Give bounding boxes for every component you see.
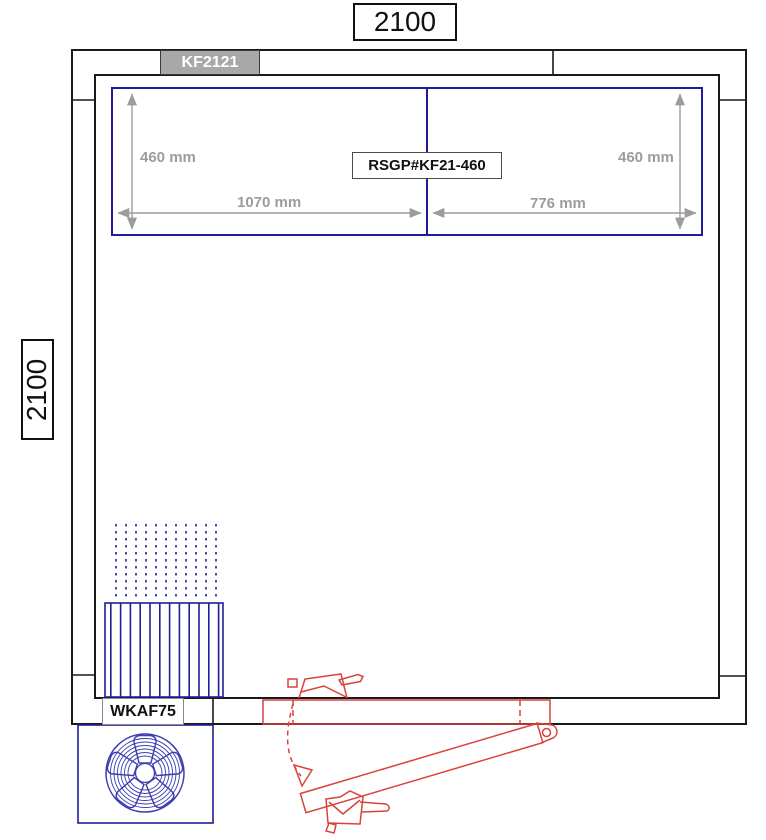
condensing-unit-label: WKAF75 — [102, 698, 184, 725]
door-leaf-open — [300, 723, 543, 812]
evaporator-coil — [105, 603, 223, 697]
height-dimension-text: 2100 — [22, 358, 54, 420]
door-frame — [263, 700, 550, 724]
door-handle-closed — [288, 674, 363, 698]
shelf-width-right-label: 776 mm — [530, 195, 586, 212]
height-dimension-label: 2100 — [21, 339, 54, 440]
shelf-model-label: RSGP#KF21-460 — [352, 152, 502, 179]
shelf-depth-right-label: 460 mm — [618, 149, 674, 166]
door-swing-arrowhead — [294, 765, 312, 786]
door-hinge — [536, 723, 557, 743]
width-dimension-label: 2100 — [353, 3, 457, 41]
fan-icon — [106, 734, 184, 812]
evaporator — [105, 524, 223, 697]
shelf-width-left-label: 1070 mm — [237, 194, 301, 211]
condensing-unit — [78, 725, 213, 823]
wall-panel-label: KF2121 — [160, 50, 260, 75]
shelf-depth-left-label: 460 mm — [140, 149, 196, 166]
floor-plan-drawing: 2100 2100 KF2121 460 mm 460 mm 1070 mm 7… — [0, 0, 766, 840]
evaporator-airflow — [116, 524, 216, 601]
condensing-unit-box — [78, 725, 213, 823]
